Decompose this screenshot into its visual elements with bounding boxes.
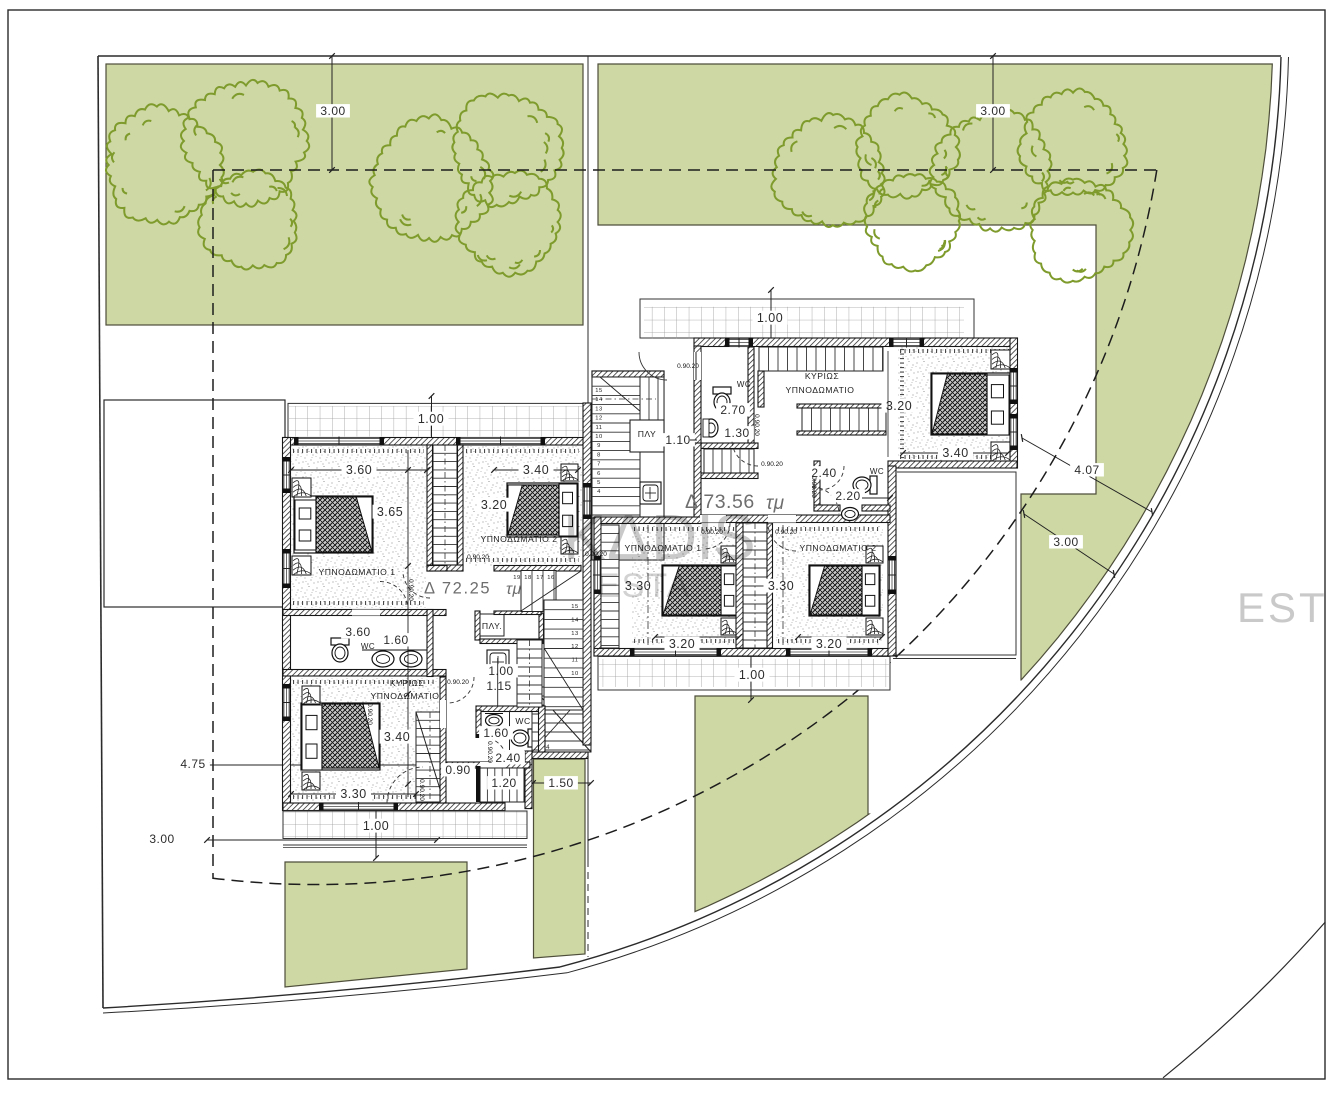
svg-text:WC: WC xyxy=(361,642,375,651)
svg-text:13: 13 xyxy=(571,631,578,637)
svg-text:ESTA: ESTA xyxy=(597,567,691,605)
svg-text:1.50: 1.50 xyxy=(548,776,573,790)
svg-text:0.90.20: 0.90.20 xyxy=(418,779,425,801)
svg-text:9: 9 xyxy=(597,443,601,449)
svg-text:4.75: 4.75 xyxy=(180,757,205,771)
svg-text:11: 11 xyxy=(571,658,578,664)
svg-text:4.07: 4.07 xyxy=(1074,463,1099,477)
svg-text:14: 14 xyxy=(571,617,579,623)
svg-text:1.30: 1.30 xyxy=(724,426,749,440)
svg-text:0.90.20: 0.90.20 xyxy=(775,529,797,536)
svg-text:15: 15 xyxy=(571,604,578,610)
svg-text:3.40: 3.40 xyxy=(942,446,968,460)
svg-text:1.00: 1.00 xyxy=(739,668,765,682)
svg-text:3.00: 3.00 xyxy=(320,104,345,118)
svg-text:WC: WC xyxy=(737,380,751,389)
svg-text:1.20: 1.20 xyxy=(491,776,516,790)
svg-text:0.90.20: 0.90.20 xyxy=(467,554,489,561)
svg-text:0.90.20: 0.90.20 xyxy=(366,703,373,725)
svg-text:0.90.20: 0.90.20 xyxy=(761,461,783,468)
svg-text:3.20: 3.20 xyxy=(481,498,507,512)
svg-text:0.90.20: 0.90.20 xyxy=(677,363,699,370)
svg-text:10: 10 xyxy=(595,434,602,440)
svg-text:3.00: 3.00 xyxy=(1053,535,1078,549)
svg-text:11: 11 xyxy=(595,425,602,431)
svg-text:1.60: 1.60 xyxy=(483,726,508,740)
svg-text:3.20: 3.20 xyxy=(886,399,912,413)
svg-text:WC: WC xyxy=(515,716,530,726)
svg-text:3.20: 3.20 xyxy=(669,637,695,651)
svg-text:0.90.20: 0.90.20 xyxy=(407,579,414,601)
svg-text:0.90.20: 0.90.20 xyxy=(486,741,493,763)
svg-text:18: 18 xyxy=(524,575,531,581)
svg-text:8: 8 xyxy=(597,452,601,458)
svg-text:ΚΥΡΙΩΣ: ΚΥΡΙΩΣ xyxy=(805,371,839,381)
svg-text:14: 14 xyxy=(595,397,603,403)
svg-text:3.40: 3.40 xyxy=(384,730,410,744)
svg-text:2.20: 2.20 xyxy=(835,489,860,503)
svg-text:4: 4 xyxy=(597,489,601,495)
svg-text:1.10: 1.10 xyxy=(665,433,690,447)
svg-text:12: 12 xyxy=(571,644,578,650)
svg-text:1.00: 1.00 xyxy=(363,819,389,833)
svg-text:3.20: 3.20 xyxy=(816,637,842,651)
svg-text:12: 12 xyxy=(595,416,602,422)
svg-text:6: 6 xyxy=(597,471,601,477)
svg-text:1.15: 1.15 xyxy=(486,679,511,693)
svg-text:1.00: 1.00 xyxy=(418,412,444,426)
svg-text:3.60: 3.60 xyxy=(346,463,372,477)
svg-text:K: K xyxy=(563,501,606,573)
svg-text:16: 16 xyxy=(547,575,554,581)
svg-text:10: 10 xyxy=(571,671,578,677)
svg-text:7: 7 xyxy=(597,462,601,468)
svg-text:1.00: 1.00 xyxy=(757,311,783,325)
svg-text:0.90.20: 0.90.20 xyxy=(810,476,817,498)
svg-text:ΥΠΝΟΔΩΜΑΤΙΟ 2: ΥΠΝΟΔΩΜΑΤΙΟ 2 xyxy=(480,534,557,544)
svg-text:ΠΛΥ.: ΠΛΥ. xyxy=(482,621,502,631)
svg-text:3.65: 3.65 xyxy=(377,505,403,519)
svg-text:τμ: τμ xyxy=(766,493,785,514)
svg-text:ΥΠΝΟΔΩΜΑΤΙΟ 2: ΥΠΝΟΔΩΜΑΤΙΟ 2 xyxy=(799,543,876,553)
svg-text:Δ 72.25: Δ 72.25 xyxy=(424,580,491,598)
svg-text:Δ: Δ xyxy=(607,501,650,573)
svg-text:3.30: 3.30 xyxy=(768,579,794,593)
svg-text:4: 4 xyxy=(546,745,550,751)
svg-text:ΥΠΝΟΔΩΜΑΤΙΟ: ΥΠΝΟΔΩΜΑΤΙΟ xyxy=(371,691,440,701)
svg-text:13: 13 xyxy=(595,406,602,412)
svg-text:1.00: 1.00 xyxy=(488,664,513,678)
svg-text:DIS: DIS xyxy=(651,501,755,573)
svg-text:17: 17 xyxy=(536,575,543,581)
svg-text:1.60: 1.60 xyxy=(383,633,408,647)
svg-text:0.90: 0.90 xyxy=(445,763,470,777)
svg-text:3.30: 3.30 xyxy=(340,787,366,801)
svg-text:ΥΠΝΟΔΩΜΑΤΙΟ 1: ΥΠΝΟΔΩΜΑΤΙΟ 1 xyxy=(318,567,395,577)
svg-text:5: 5 xyxy=(597,480,601,486)
svg-text:0.90.20: 0.90.20 xyxy=(447,679,469,686)
svg-text:2.40: 2.40 xyxy=(495,751,520,765)
svg-text:3.00: 3.00 xyxy=(980,104,1005,118)
svg-text:3.60: 3.60 xyxy=(345,625,370,639)
svg-text:3.40: 3.40 xyxy=(523,463,549,477)
svg-text:3.00: 3.00 xyxy=(149,832,174,846)
svg-text:ΥΠΝΟΔΩΜΑΤΙΟ: ΥΠΝΟΔΩΜΑΤΙΟ xyxy=(786,385,855,395)
svg-text:ΠΛΥ: ΠΛΥ xyxy=(638,429,657,439)
svg-text:15: 15 xyxy=(595,388,602,394)
svg-text:EST: EST xyxy=(1237,584,1328,631)
svg-text:WC: WC xyxy=(870,467,884,476)
svg-text:0.90.20: 0.90.20 xyxy=(753,414,760,436)
svg-text:2.70: 2.70 xyxy=(720,403,745,417)
svg-text:τμ: τμ xyxy=(506,581,522,598)
svg-text:ΚΥΡΙΩΣ: ΚΥΡΙΩΣ xyxy=(390,678,424,688)
